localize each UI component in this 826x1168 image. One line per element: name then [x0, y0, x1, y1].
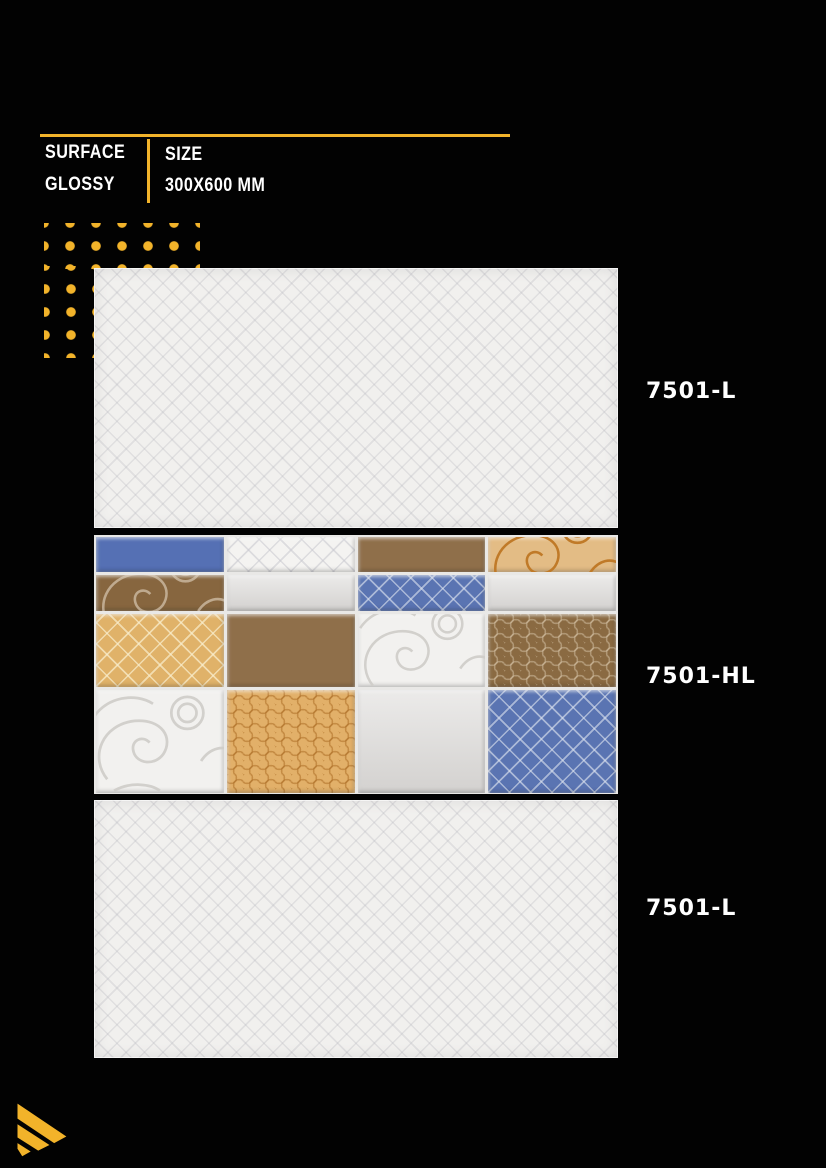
tile-swatch-white-lattice	[227, 537, 355, 572]
highlighter-tile	[94, 535, 618, 794]
surface-label: SURFACE	[45, 143, 125, 163]
tile-swatch-blue-lattice	[488, 690, 616, 793]
header-accent-line	[40, 134, 510, 137]
tile-swatch-brown-paisley	[96, 575, 224, 611]
tile-image-7501-L-top	[94, 268, 618, 528]
tile-swatch-gold-paisley	[488, 537, 616, 572]
tile-swatch-brown-solid	[227, 614, 355, 687]
tile-swatch-white-paisley	[358, 614, 486, 687]
brand-logo-icon	[10, 1096, 72, 1162]
surface-value: GLOSSY	[45, 175, 115, 195]
tile-swatch-gold-lattice	[96, 614, 224, 687]
catalog-page: SURFACE GLOSSY SIZE 300X600 MM 7501-L 75…	[0, 0, 826, 1168]
tile-swatch-brown-honeycomb	[488, 614, 616, 687]
header-divider	[147, 139, 150, 203]
tile-swatch-blue-lattice	[358, 575, 486, 611]
tile-swatch-blue-solid	[96, 537, 224, 572]
product-code-label: 7501-L	[646, 896, 736, 921]
size-label: SIZE	[165, 145, 203, 165]
tile-swatch-white-paisley	[96, 690, 224, 793]
tile-swatch-brown-solid	[358, 537, 486, 572]
tile-image-7501-L-bottom	[94, 800, 618, 1058]
dot-grid-decoration-left	[44, 266, 98, 358]
tile-swatch-grey-solid	[227, 575, 355, 611]
product-code-label: 7501-L	[646, 379, 736, 404]
tile-swatch-grey-solid	[488, 575, 616, 611]
product-code-label: 7501-HL	[646, 664, 756, 689]
tile-swatch-grey-solid	[358, 690, 486, 793]
dot-grid-decoration-top	[44, 223, 200, 269]
size-value: 300X600 MM	[165, 176, 265, 196]
tile-swatch-gold-honeycomb	[227, 690, 355, 793]
